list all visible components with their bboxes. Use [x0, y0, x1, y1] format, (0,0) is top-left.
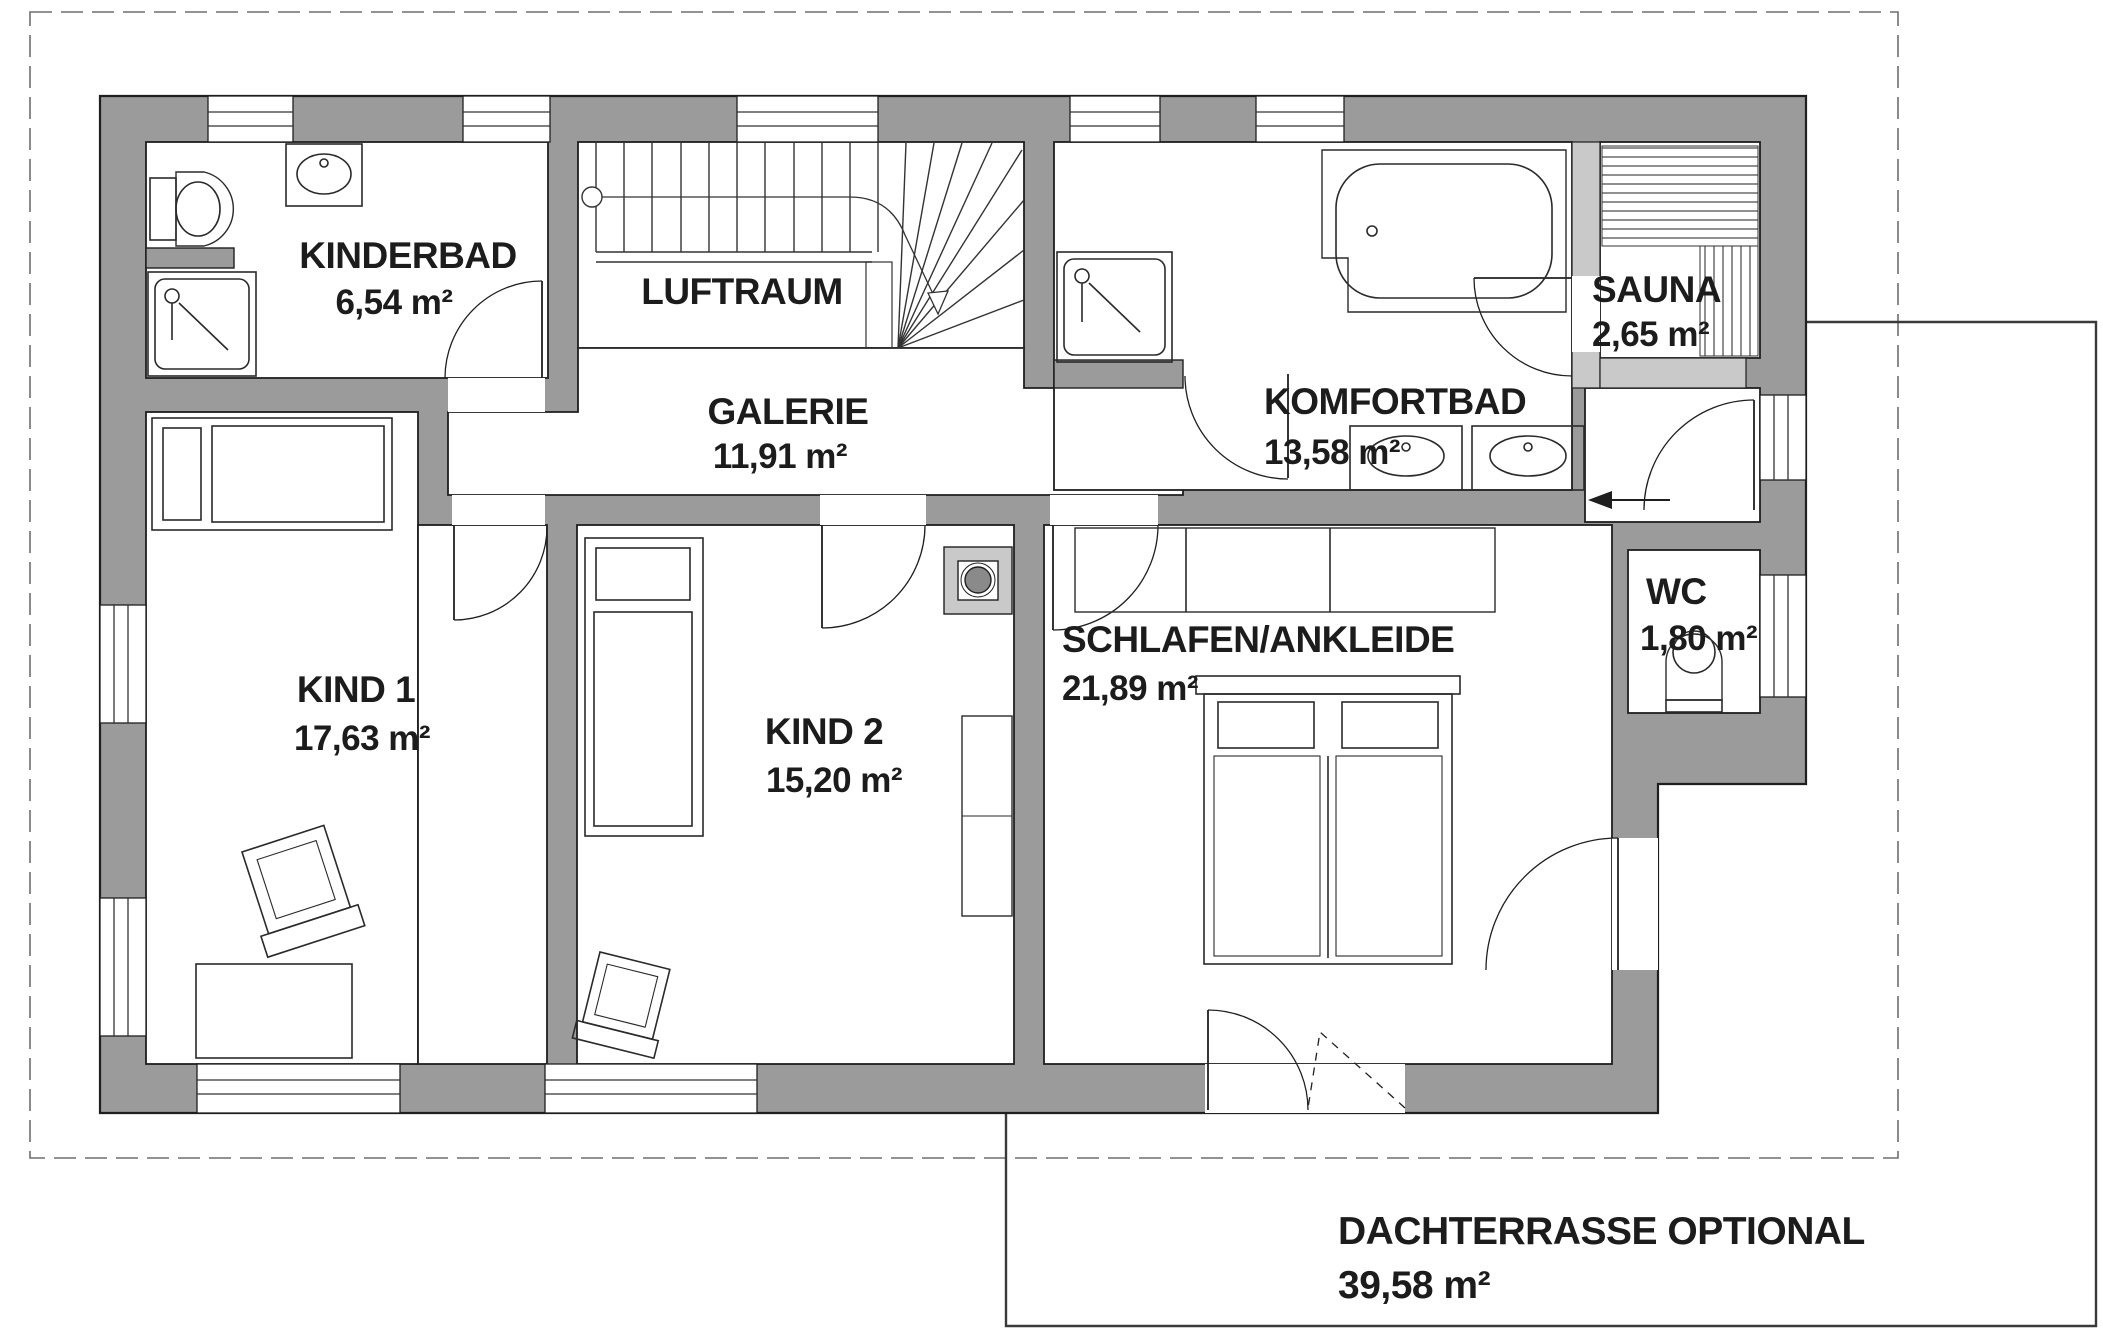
label-wc-area: 1,80 m²	[1640, 619, 1757, 658]
label-kinderbad-area: 6,54 m²	[335, 283, 452, 322]
label-kind1: KIND 1	[297, 669, 415, 710]
label-schlafen-area: 21,89 m²	[1062, 669, 1198, 708]
label-kind2-area: 15,20 m²	[766, 761, 902, 800]
label-galerie: GALERIE	[708, 391, 869, 432]
window-left-1	[100, 605, 146, 723]
sauna-south-wall	[1600, 358, 1746, 388]
window-top-5	[1256, 96, 1344, 142]
window-top-2	[463, 96, 550, 142]
label-luftraum: LUFTRAUM	[641, 271, 843, 312]
label-schlafen: SCHLAFEN/ANKLEIDE	[1062, 619, 1454, 660]
label-dachterrasse-area: 39,58 m²	[1338, 1264, 1491, 1307]
label-sauna: SAUNA	[1592, 269, 1721, 310]
window-left-2	[100, 898, 146, 1036]
label-kinderbad: KINDERBAD	[299, 235, 517, 276]
chimney	[944, 547, 1012, 614]
label-sauna-area: 2,65 m²	[1592, 315, 1709, 354]
window-top-1	[208, 96, 293, 142]
floorplan-page: KINDERBAD 6,54 m² LUFTRAUM GALERIE 11,91…	[0, 0, 2103, 1329]
window-bottom-2	[545, 1064, 757, 1113]
window-bottom-1	[197, 1064, 400, 1113]
label-kind2: KIND 2	[765, 711, 883, 752]
label-galerie-area: 11,91 m²	[713, 437, 847, 476]
komfortbad-south-wall	[1054, 360, 1183, 388]
label-komfortbad-area: 13,58 m²	[1264, 433, 1400, 472]
window-top-3	[737, 96, 878, 142]
label-wc: WC	[1646, 571, 1707, 612]
kinderbad-partition-wall	[146, 248, 234, 268]
label-kind1-area: 17,63 m²	[294, 719, 430, 758]
floorplan-drawing: KINDERBAD 6,54 m² LUFTRAUM GALERIE 11,91…	[0, 0, 2103, 1329]
window-right-1	[1760, 395, 1806, 480]
window-top-4	[1070, 96, 1160, 142]
window-right-2	[1760, 575, 1806, 697]
room-kind1-east	[418, 525, 547, 1064]
label-komfortbad: KOMFORTBAD	[1264, 381, 1526, 422]
label-dachterrasse: DACHTERRASSE OPTIONAL	[1338, 1210, 1865, 1253]
room-stairwell-luftraum	[578, 142, 1024, 348]
